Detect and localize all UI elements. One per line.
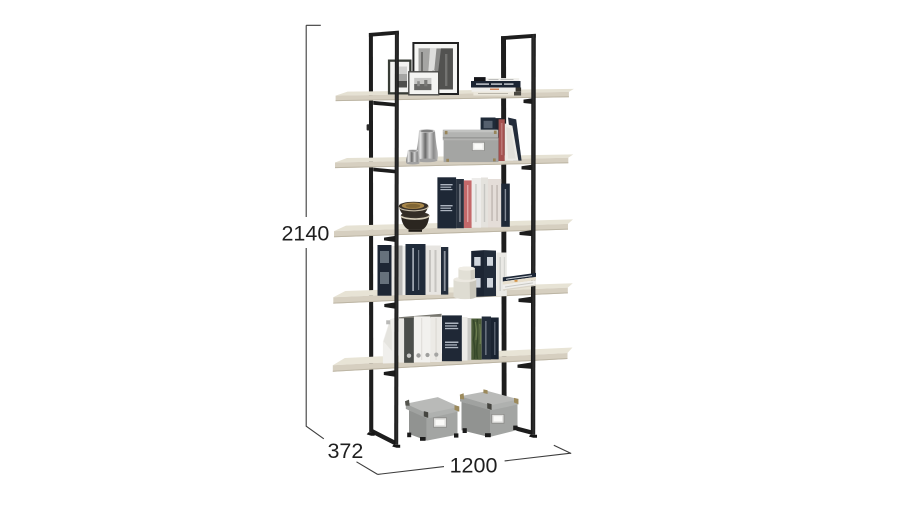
- svg-text:372: 372: [327, 439, 363, 463]
- svg-text:2140: 2140: [281, 221, 329, 245]
- svg-text:1200: 1200: [450, 454, 498, 478]
